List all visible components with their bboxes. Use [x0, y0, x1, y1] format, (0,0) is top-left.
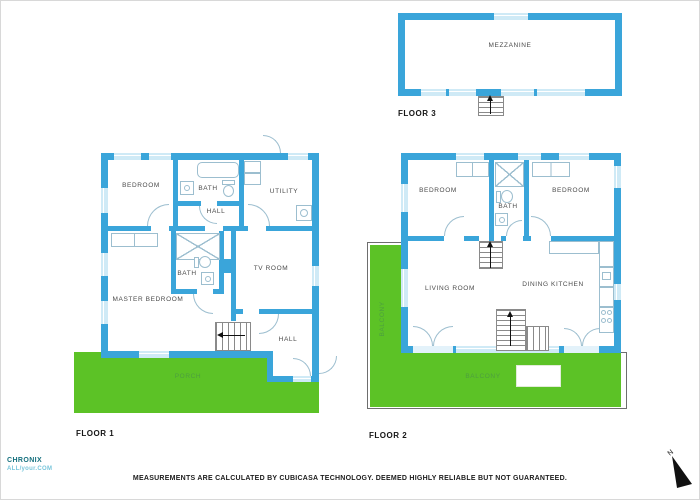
- stairs-direction-arrow: [490, 246, 491, 268]
- window: [614, 284, 621, 300]
- door-threshold: [564, 346, 599, 353]
- door-arc: [564, 328, 582, 346]
- stove-burner: [601, 310, 606, 315]
- balcony-border: [367, 242, 368, 409]
- window: [101, 253, 108, 276]
- utility-counter: [244, 161, 261, 173]
- window: [139, 351, 169, 358]
- room-label-bedroom: BEDROOM: [535, 187, 607, 195]
- door-arc: [319, 356, 337, 374]
- room-label-bath: BATH: [188, 185, 228, 193]
- door-arc: [147, 204, 169, 226]
- wall-segment: [101, 351, 273, 358]
- room-label-balcony-vertical: BALCONY: [379, 289, 387, 349]
- arrow-up-icon: [507, 311, 513, 317]
- floor2-label: FLOOR 2: [369, 431, 407, 440]
- balcony-border: [621, 352, 627, 353]
- door-arc: [506, 220, 522, 236]
- wall-segment: [266, 226, 312, 231]
- window: [101, 188, 108, 213]
- window: [312, 266, 319, 286]
- stairs-direction-arrow: [223, 335, 245, 336]
- room-label-bedroom: BEDROOM: [402, 187, 474, 195]
- utility-counter: [244, 173, 261, 185]
- window: [537, 89, 585, 96]
- stove-burner: [607, 318, 612, 323]
- window: [293, 376, 311, 382]
- wall-segment: [408, 236, 444, 241]
- wall-segment: [524, 160, 529, 241]
- kitchen-sink: [602, 272, 611, 280]
- window: [114, 153, 141, 160]
- chimney-block: [219, 259, 231, 273]
- door-arc: [263, 135, 281, 153]
- room-label-porch: PORCH: [153, 373, 223, 381]
- wall-segment: [615, 13, 622, 96]
- window: [421, 89, 446, 96]
- stairs-direction-arrow: [510, 316, 511, 346]
- room-label-living-room: LIVING ROOM: [400, 285, 500, 293]
- wall-segment: [401, 153, 408, 353]
- door-arc: [248, 204, 270, 226]
- room-label-bath: BATH: [166, 270, 208, 278]
- bathtub: [197, 162, 239, 178]
- door-arc: [259, 314, 279, 334]
- stove-burner: [607, 310, 612, 315]
- window: [559, 153, 589, 160]
- room-label-tv-room: TV ROOM: [235, 265, 307, 273]
- window: [456, 153, 484, 160]
- arrow-up-icon: [487, 95, 493, 101]
- porch-area: [273, 381, 319, 413]
- room-label-balcony: BALCONY: [443, 373, 523, 381]
- kitchen-counter: [549, 241, 599, 254]
- door-arc: [413, 326, 433, 346]
- window: [449, 89, 476, 96]
- disclaimer-text: MEASUREMENTS ARE CALCULATED BY CUBICASA …: [1, 475, 699, 482]
- arrow-up-icon: [487, 241, 493, 247]
- wall-segment: [398, 13, 405, 96]
- balcony-border: [367, 242, 402, 243]
- window: [288, 153, 308, 160]
- stairs-direction-arrow: [490, 100, 491, 114]
- stairs: [526, 326, 549, 351]
- room-label-dining-kitchen: DINING KITCHEN: [498, 281, 608, 289]
- room-label-utility: UTILITY: [248, 188, 320, 196]
- door-arc: [444, 216, 464, 236]
- room-label-master-bedroom: MASTER BEDROOM: [87, 296, 209, 304]
- shower: [176, 233, 220, 260]
- compass-north-label: N: [667, 449, 675, 458]
- window: [101, 301, 108, 324]
- window: [149, 153, 171, 160]
- stove-burner: [601, 318, 606, 323]
- wall-segment: [464, 236, 479, 241]
- wall-segment: [108, 226, 151, 231]
- logo-text: CHRONIX: [7, 457, 42, 464]
- kitchen-counter: [599, 241, 614, 267]
- door-arc: [433, 326, 453, 346]
- floor3-label: FLOOR 3: [398, 109, 436, 118]
- door-threshold: [413, 346, 453, 353]
- room-label-hall: HALL: [191, 208, 241, 216]
- balcony-border: [367, 408, 627, 409]
- wall-segment: [178, 201, 201, 206]
- window: [614, 166, 621, 188]
- toilet: [501, 190, 513, 203]
- washer-drum: [300, 209, 308, 217]
- door-arc: [531, 216, 551, 236]
- room-label-hall: HALL: [264, 336, 312, 344]
- shower: [495, 162, 524, 187]
- floor1-label: FLOOR 1: [76, 429, 114, 438]
- balcony-border: [626, 352, 627, 409]
- toilet: [199, 256, 211, 268]
- porch-area: [74, 352, 273, 413]
- logo-subtext: ALL/your.COM: [7, 466, 52, 472]
- room-label-mezzanine: MEZZANINE: [460, 42, 560, 50]
- floorplan-page: MEZZANINE FLOOR 3: [0, 0, 700, 500]
- room-label-bath: BATH: [488, 203, 528, 211]
- wall-segment: [231, 309, 243, 314]
- north-arrow-icon: N: [663, 441, 699, 493]
- wall-segment: [173, 160, 178, 226]
- kitchen-counter: [599, 287, 614, 307]
- wardrobe: [456, 162, 489, 177]
- window: [494, 13, 528, 20]
- wardrobe: [111, 233, 158, 247]
- arrow-left-icon: [217, 332, 223, 338]
- wardrobe: [532, 162, 570, 177]
- wall-segment: [217, 201, 239, 206]
- room-label-bedroom: BEDROOM: [105, 182, 177, 190]
- window: [518, 153, 541, 160]
- window: [501, 89, 534, 96]
- sink-basin: [499, 217, 505, 223]
- wall-segment: [489, 160, 494, 241]
- wall-segment: [231, 231, 236, 321]
- door-arc: [293, 358, 311, 376]
- door-arc: [582, 328, 600, 346]
